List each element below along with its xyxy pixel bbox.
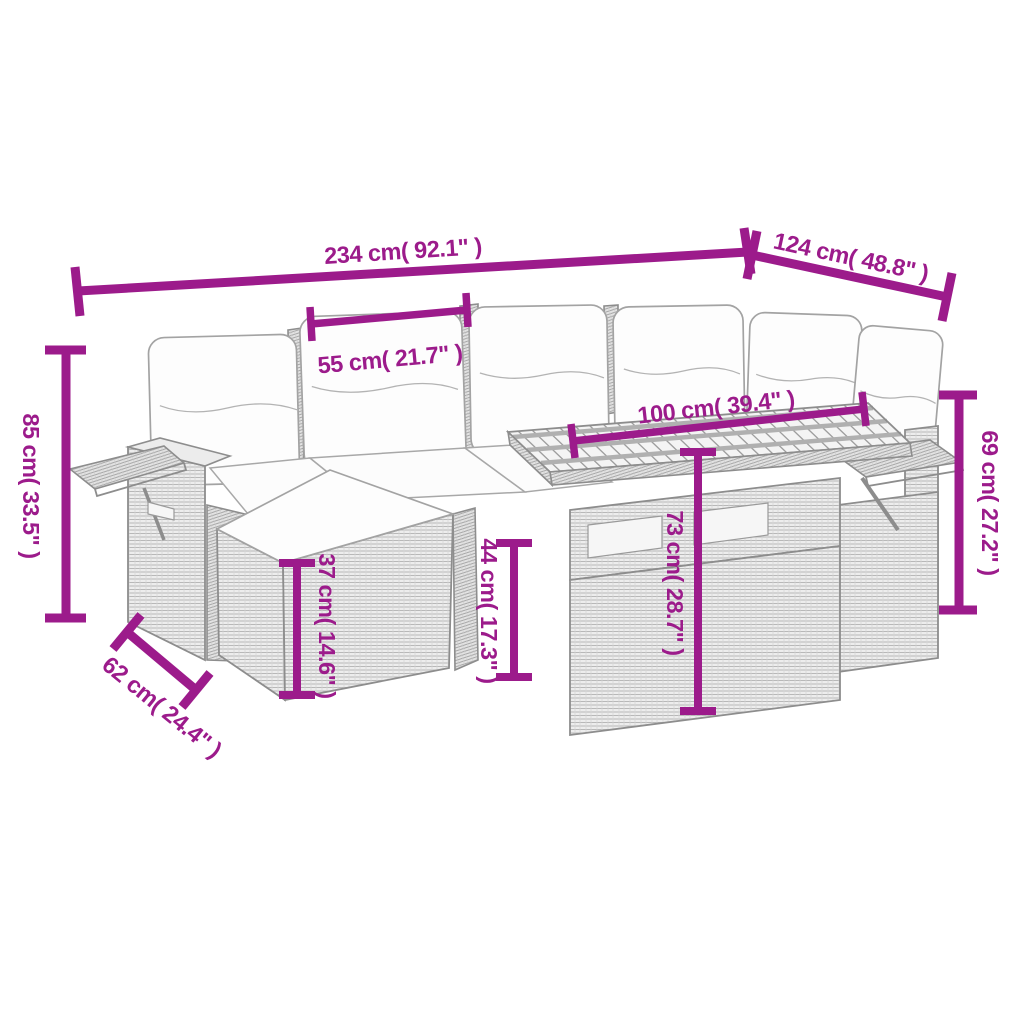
diagram-canvas: 234 cm( 92.1" ) 124 cm( 48.8" ) 55 cm( 2… (0, 0, 1024, 1024)
product-dimension-diagram: 234 cm( 92.1" ) 124 cm( 48.8" ) 55 cm( 2… (0, 0, 1024, 1024)
dim-back-height-left-line (45, 350, 86, 618)
label-footstool-depth: 62 cm( 24.4" ) (97, 651, 226, 763)
label-seat-height: 44 cm( 17.3" ) (476, 538, 502, 683)
label-back-height-left: 85 cm( 33.5" ) (18, 413, 44, 558)
pillow (299, 311, 466, 471)
label-overall-width: 234 cm( 92.1" ) (323, 233, 482, 269)
dim-back-height-right-line (939, 395, 977, 610)
table-base (570, 478, 840, 735)
label-table-height: 73 cm( 28.7" ) (662, 510, 688, 655)
label-footstool-height: 37 cm( 14.6" ) (314, 553, 340, 698)
label-back-height-right: 69 cm( 27.2" ) (977, 430, 1003, 575)
right-arm-and-shelf (832, 426, 963, 672)
